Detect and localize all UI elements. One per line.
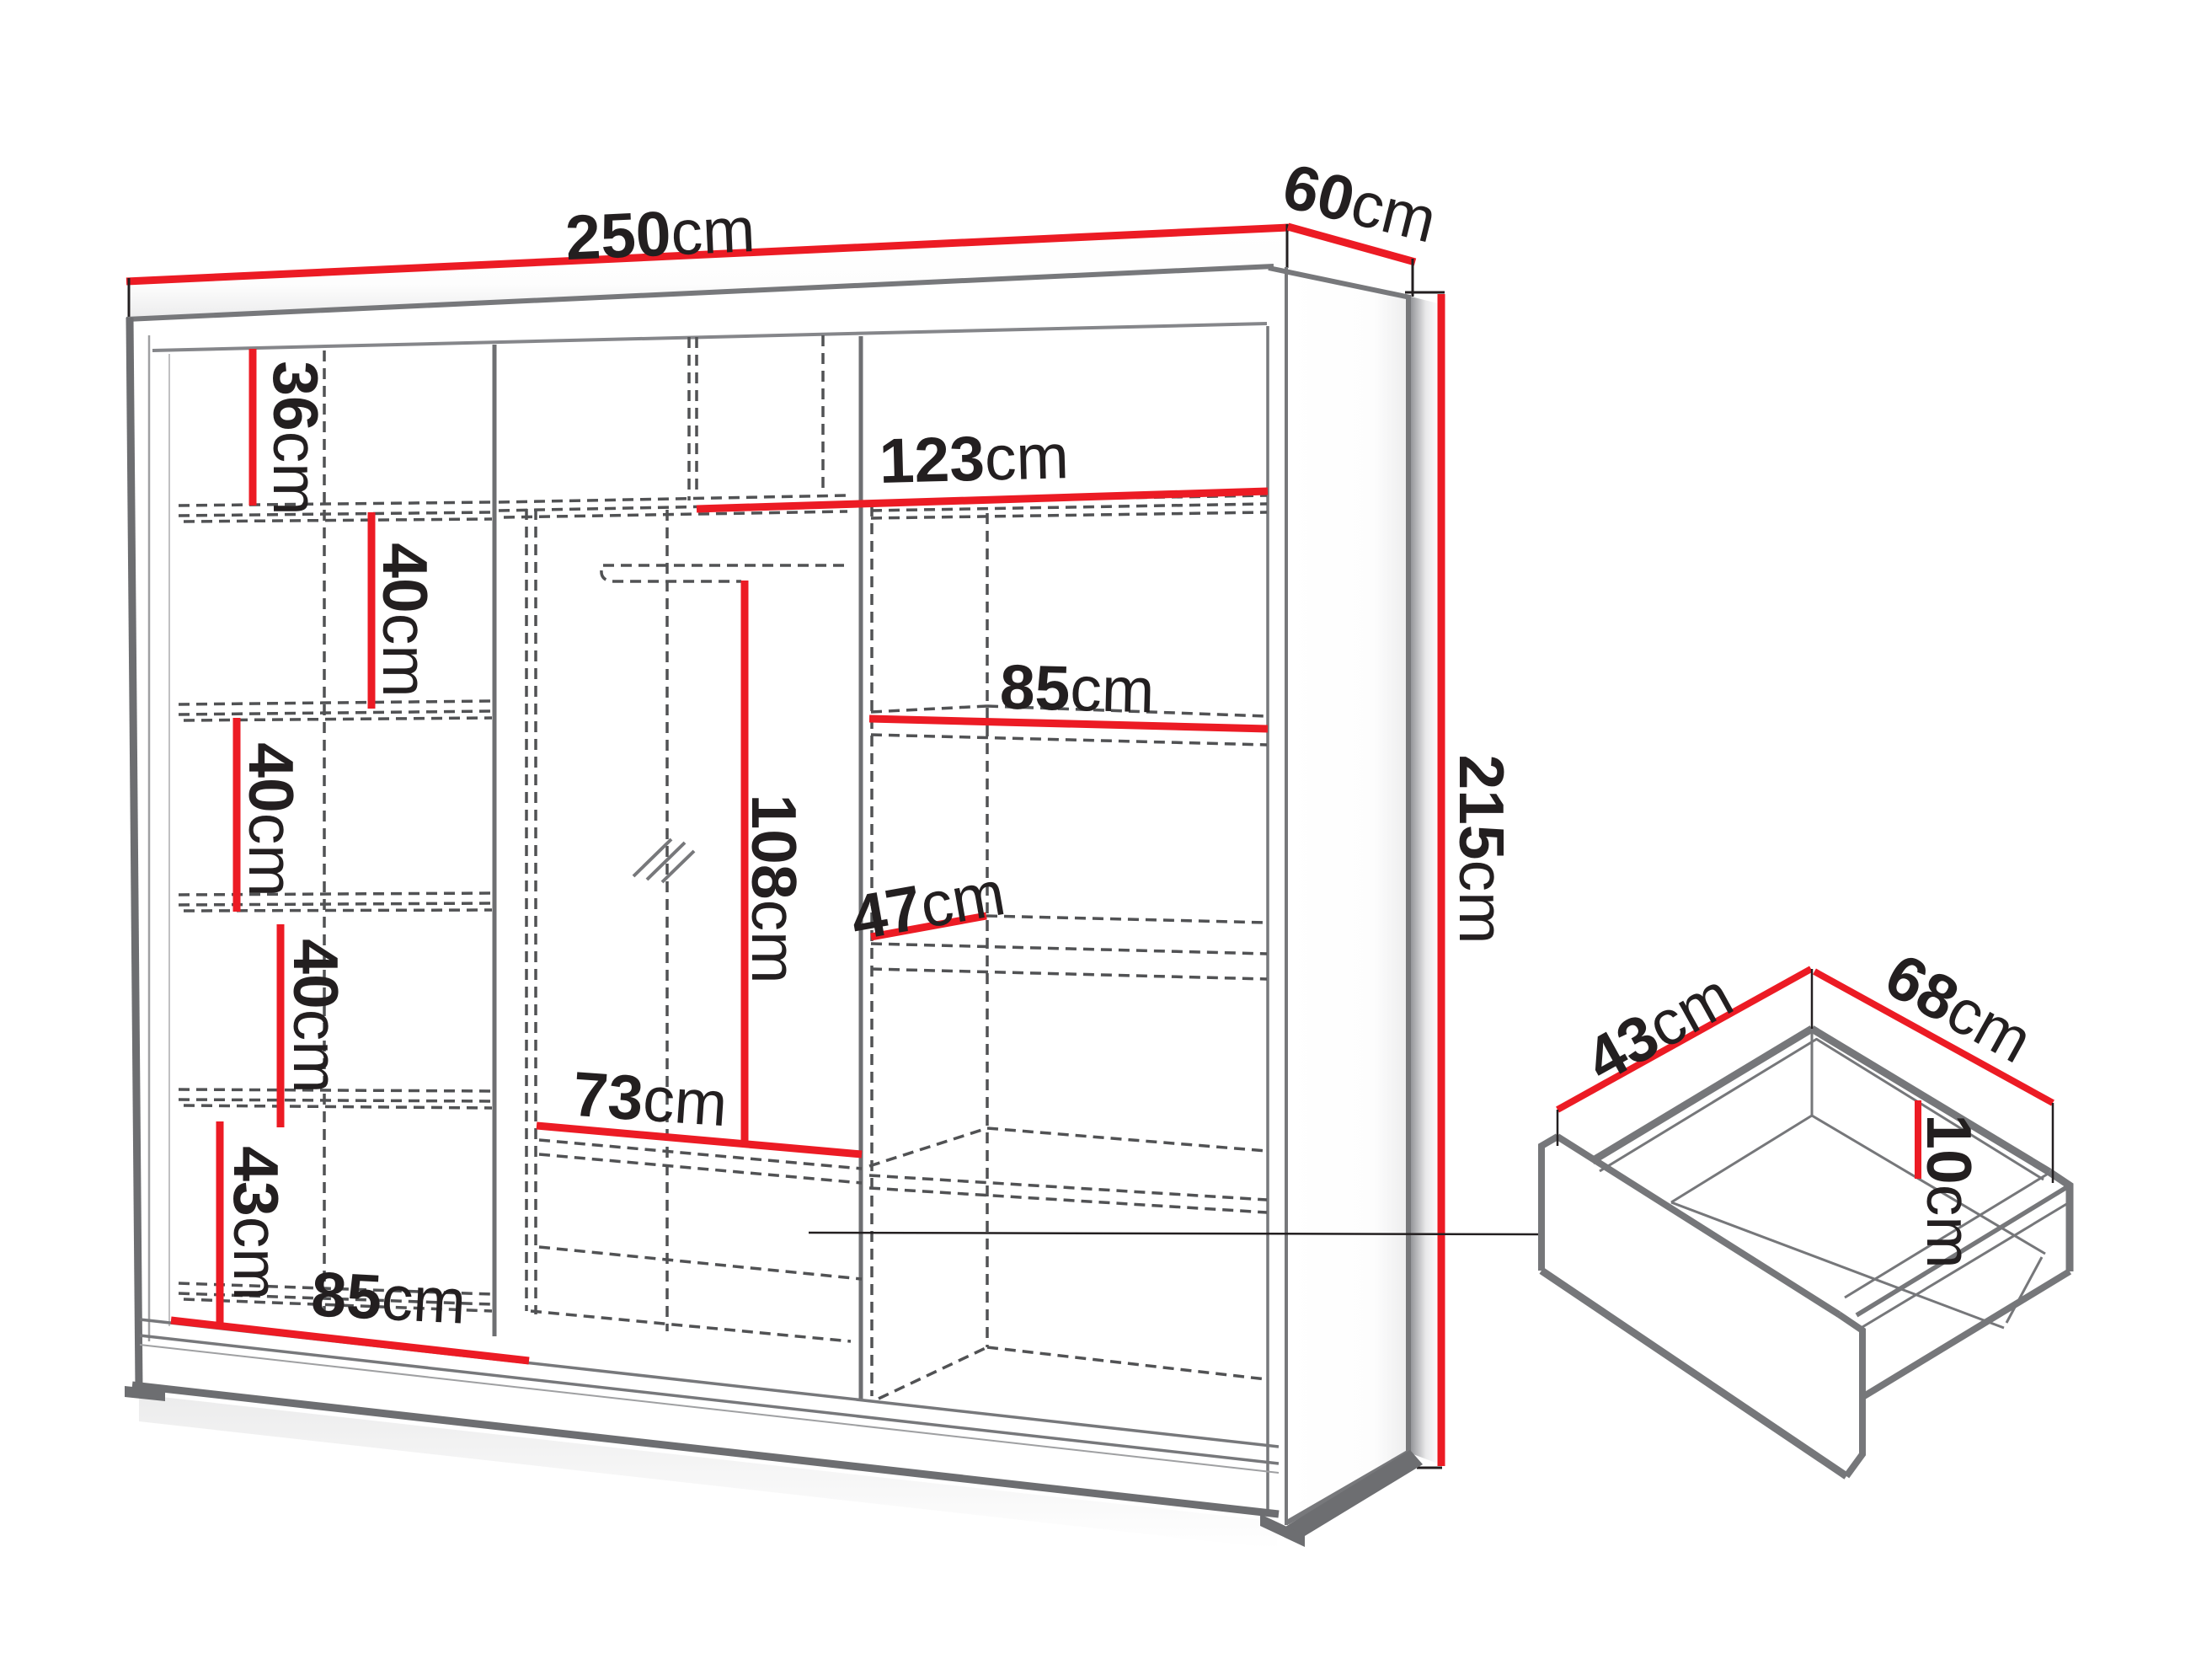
- svg-text:68cm: 68cm: [1874, 939, 2044, 1076]
- svg-text:85cm: 85cm: [310, 1258, 468, 1336]
- svg-text:215cm: 215cm: [1446, 754, 1517, 944]
- svg-text:40cm: 40cm: [281, 939, 351, 1093]
- svg-text:250cm: 250cm: [564, 194, 756, 273]
- svg-text:43cm: 43cm: [221, 1146, 291, 1300]
- svg-text:40cm: 40cm: [236, 742, 307, 896]
- svg-text:73cm: 73cm: [570, 1058, 729, 1140]
- svg-text:85cm: 85cm: [999, 651, 1156, 726]
- svg-text:123cm: 123cm: [879, 420, 1070, 496]
- svg-text:40cm: 40cm: [370, 543, 441, 697]
- svg-text:43cm: 43cm: [1574, 959, 1744, 1095]
- svg-text:36cm: 36cm: [260, 361, 331, 515]
- svg-text:10cm: 10cm: [1914, 1114, 1985, 1268]
- svg-text:108cm: 108cm: [739, 794, 809, 983]
